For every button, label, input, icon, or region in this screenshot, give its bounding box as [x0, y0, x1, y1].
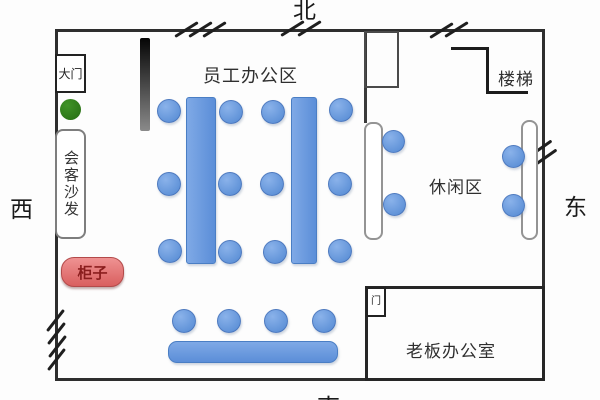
chair	[217, 309, 241, 333]
boss-office-wall	[365, 286, 545, 381]
chair	[219, 100, 243, 124]
compass-west-label: 西	[10, 190, 33, 224]
screen-bar	[140, 38, 150, 131]
leisure-sofa	[364, 122, 383, 240]
staff-desk	[291, 97, 317, 264]
cabinet: 柜子	[61, 257, 124, 287]
compass-east-label: 东	[564, 188, 587, 222]
chair	[260, 172, 284, 196]
compass-south-label: 南	[317, 388, 340, 400]
stairs-symbol	[486, 47, 489, 94]
main-door-box: 大门	[55, 54, 86, 93]
chair	[382, 130, 405, 153]
boss-door-box: 门	[366, 287, 386, 317]
cabinet-label: 柜子	[77, 262, 107, 283]
guest-sofa: 会客沙发	[55, 129, 86, 239]
chair	[383, 193, 406, 216]
wall-column	[364, 31, 399, 88]
staff-office-area-label: 员工办公区	[203, 62, 298, 88]
main-door-label: 大门	[58, 65, 82, 82]
chair	[264, 309, 288, 333]
meeting-desk	[168, 341, 338, 363]
chair	[328, 172, 352, 196]
staff-desk	[186, 97, 216, 264]
chair	[312, 309, 336, 333]
chair	[328, 239, 352, 263]
floor-plan: 北 南 西 东 大门 会客沙发 柜子 员工办公区 休闲区 老板办公室 楼梯	[0, 0, 600, 400]
stairs-symbol	[486, 91, 528, 94]
chair	[502, 194, 525, 217]
chair	[158, 239, 182, 263]
chair	[502, 145, 525, 168]
leisure-sofa	[521, 120, 538, 240]
green-dot-marker	[60, 99, 81, 120]
boss-office-label: 老板办公室	[406, 337, 496, 362]
chair	[329, 98, 353, 122]
chair	[157, 99, 181, 123]
chair	[157, 172, 181, 196]
stairs-label: 楼梯	[498, 65, 534, 90]
chair	[218, 240, 242, 264]
boss-door-label: 门	[371, 292, 381, 307]
leisure-area-label: 休闲区	[429, 173, 483, 198]
guest-sofa-label: 会客沙发	[63, 150, 78, 218]
chair	[263, 240, 287, 264]
chair	[218, 172, 242, 196]
chair	[172, 309, 196, 333]
chair	[261, 100, 285, 124]
stairs-symbol	[451, 47, 489, 50]
